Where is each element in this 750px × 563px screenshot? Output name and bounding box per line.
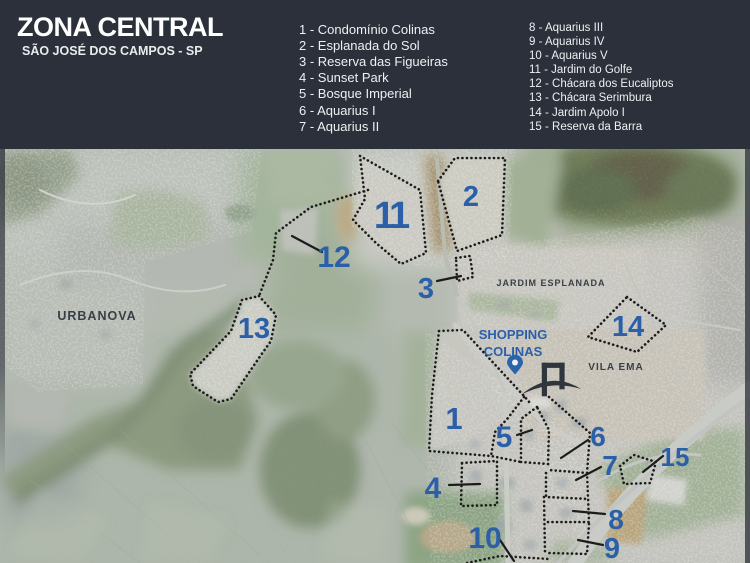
svg-text:1: 1 <box>445 401 462 436</box>
svg-text:10: 10 <box>468 522 501 555</box>
svg-text:8: 8 <box>608 504 624 535</box>
svg-text:11: 11 <box>374 195 410 237</box>
svg-text:SHOPPING: SHOPPING <box>479 327 548 342</box>
svg-text:4: 4 <box>425 472 442 505</box>
svg-text:7: 7 <box>602 450 618 481</box>
svg-text:12: 12 <box>317 241 350 274</box>
svg-text:VILA EMA: VILA EMA <box>588 362 643 373</box>
svg-text:JARDIM ESPLANADA: JARDIM ESPLANADA <box>496 278 605 288</box>
svg-text:15: 15 <box>661 442 690 472</box>
svg-text:3: 3 <box>418 273 434 305</box>
svg-text:6: 6 <box>590 421 606 452</box>
svg-text:9: 9 <box>604 533 620 563</box>
svg-text:13: 13 <box>238 313 270 345</box>
svg-text:URBANOVA: URBANOVA <box>57 309 136 323</box>
svg-text:5: 5 <box>496 421 513 454</box>
svg-text:2: 2 <box>463 181 479 213</box>
svg-text:14: 14 <box>612 311 644 343</box>
